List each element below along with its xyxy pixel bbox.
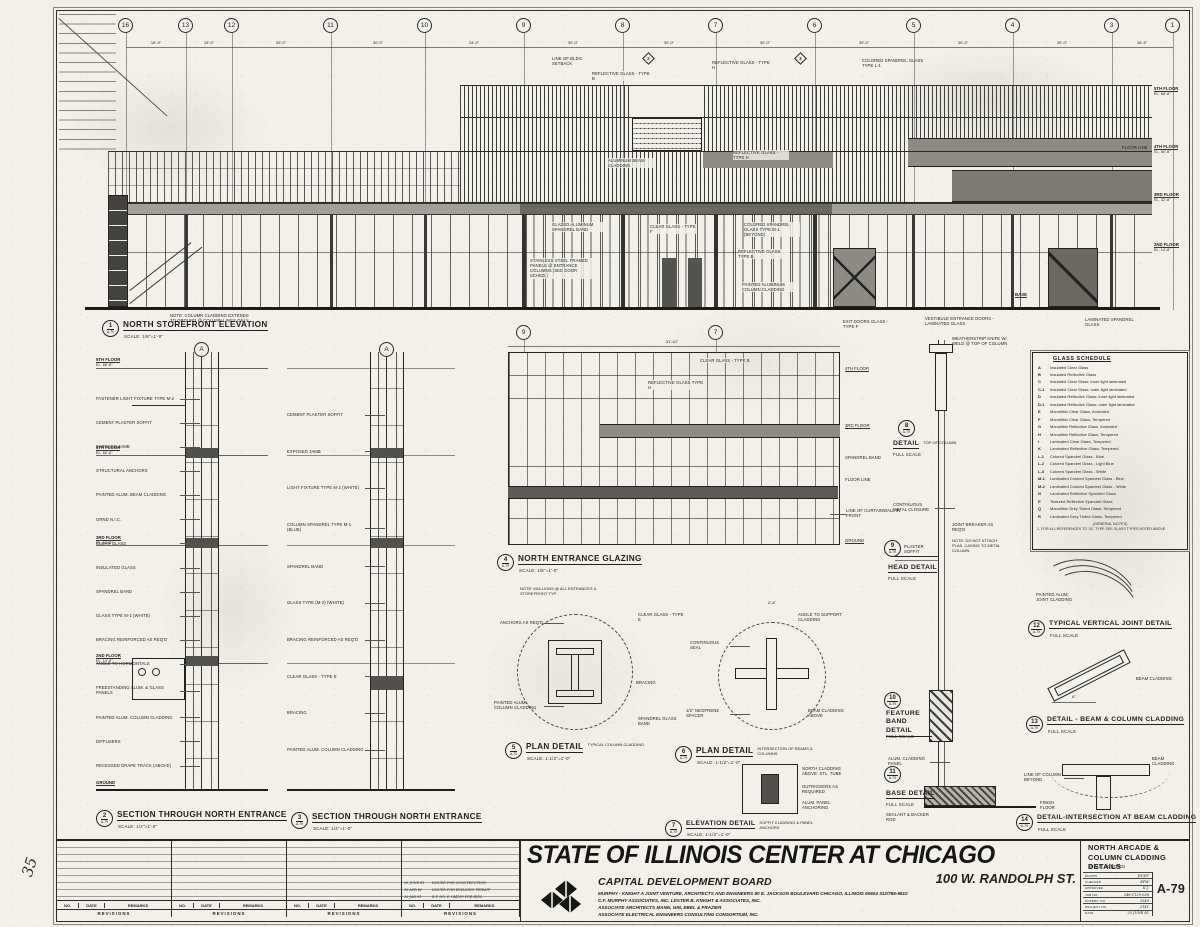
callout: REFLECTIVE GLASS TYPE B: [738, 249, 790, 259]
callout: ANCHORS AS REQ'D: [500, 620, 544, 625]
titleblock-field: CHECKED EPW: [1083, 878, 1152, 884]
column: [912, 215, 915, 307]
column: [330, 215, 333, 307]
sheet-scale-note: SCALE: AS NOTED: [1088, 864, 1125, 869]
feature-band-block: [929, 690, 953, 742]
revision-entry: 25 JUNE 81 ISSUED FOR CONSTRUCTION: [402, 880, 519, 887]
callout: PAINTED ALUM. BEAM CLADDING: [96, 492, 180, 497]
section-letter-bubble: A: [379, 342, 394, 357]
revision-entry: 30 JAN 81 B.P. NO. E-144150 FOR BIDS: [402, 893, 519, 900]
grid-line: [1173, 33, 1174, 310]
project-address: 100 W. RANDOLPH ST.: [908, 871, 1076, 886]
revision-remarks: B.P. NO. E-144150 FOR BIDS: [432, 895, 519, 899]
callout: BEAM CLADDING: [1152, 756, 1184, 766]
revision-rows: [287, 841, 401, 900]
callout: LIGHT FIXTURE TYPE M-2 (WHITE): [287, 485, 365, 490]
center-door: [662, 258, 676, 307]
glass-type-key: D: [1033, 393, 1050, 400]
glass-type-key: A: [1033, 364, 1050, 371]
callout: BRACING REINFORCED AS REQ'D: [287, 637, 365, 642]
callout: REFLECTIVE GLASS - TYPE B: [592, 71, 650, 81]
soffit-line: [895, 560, 938, 561]
field-label: CHECKED: [1083, 880, 1109, 884]
entrance-column: [522, 215, 526, 307]
ground-label: GROUND: [845, 538, 864, 544]
glass-type-desc: Monolithic Reflective Glass, Annealed: [1050, 423, 1187, 430]
callout: SEALANT & BACKER ROD: [886, 812, 934, 822]
glass-type-desc: Insulated Reflective Glass; outer light …: [1050, 401, 1187, 408]
glass-type-desc: Laminated Colored Spandrel Glass - Blue: [1050, 475, 1187, 482]
field-value: 25 JUNE 81: [1109, 911, 1152, 915]
revision-header: NO. DATE REMARKS: [172, 900, 286, 909]
detail-bubble: 11A-79: [884, 766, 901, 783]
drawing-subtitle: INTERSECTION OF BEAMS & COLUMNS: [757, 747, 827, 757]
glass-schedule-row: K Laminated Reflective Glass, Tempered: [1033, 445, 1187, 452]
curtainwall-gap: [632, 86, 702, 117]
spandrel-label: SPANDREL BAND: [845, 455, 881, 460]
callout: EXPOSED JAMB: [96, 444, 180, 449]
glass-schedule-row: I Laminated Clear Glass, Tempered: [1033, 438, 1187, 445]
glass-type-desc: Colored Spandrel Glass - White: [1050, 468, 1187, 475]
revisions-label: REVISIONS: [172, 909, 286, 917]
revision-entries: 25 JUNE 81 ISSUED FOR CONSTRUCTION 16 AP…: [402, 880, 519, 900]
glass-type-desc: Colored Spandrel Glass - Blue: [1050, 453, 1187, 460]
titleblock-field: SUPERV. NO. 2549: [1083, 897, 1152, 903]
glass-type-key: I: [1033, 438, 1050, 445]
glass-type-key: R: [1033, 513, 1050, 520]
revision-rows: [172, 841, 286, 900]
grid-dim: 18'-9": [1137, 40, 1147, 45]
callout: CLEAR GLASS - TYPE B: [700, 358, 750, 363]
drawing-title: NORTH STOREFRONT ELEVATION: [123, 320, 268, 331]
callout: GLASS TYPE M-2 (WHITE): [96, 613, 180, 618]
grid-bubble: 10: [417, 18, 432, 33]
glass-type-desc: Laminated Reflective Spandrel Glass: [1050, 490, 1187, 497]
callout: PAINTED ALUM. COLUMN CLADDING: [494, 700, 544, 710]
drawing-title: TYPICAL VERTICAL JOINT DETAIL: [1049, 620, 1172, 629]
titleblock-field: JOB NO. 248-1129-038: [1083, 891, 1152, 897]
glazing4-note: NOTE: MULLIONS @ ALL ENTRANCES & STOREFR…: [520, 586, 600, 596]
detail6-dim: 2'-4": [768, 600, 776, 605]
detail-bubble: 13A-79: [1026, 716, 1043, 733]
floor-label: 3RD FLOOR: [845, 423, 870, 429]
base-label: BASE: [1015, 292, 1027, 298]
floor-label: 5TH FLOOREL. 68'-8": [1154, 86, 1178, 97]
cdb-logo: [538, 874, 588, 918]
glass-schedule-rows: A Insulated Clear Glass B Insulated Refl…: [1033, 364, 1187, 521]
callout: NORTH CLADDING ABOVE: STL. TUBE: [802, 766, 854, 776]
sheet-number: A-79: [1153, 882, 1189, 896]
callout: EXPOSED JAMB: [287, 449, 365, 454]
transom-line: [108, 252, 1152, 253]
drawing-title: DETAIL - BEAM & COLUMN CLADDING: [1047, 716, 1184, 725]
drawing-title: SECTION THROUGH NORTH ENTRANCE: [117, 810, 287, 821]
callout: BRACING: [636, 680, 672, 685]
entrance-column: [813, 215, 817, 307]
drawing-sheet: 35 16 13 12 11 10 9 8 7 6 5 4 3 1 18'-9"…: [0, 0, 1200, 927]
field-label: DRAWN: [1083, 874, 1109, 878]
detail-bubble: 3A-79: [291, 812, 308, 829]
detail-bubble: 10A-79: [884, 692, 901, 709]
credit-line: ASSOCIATE ARCHITECTS MANN, GIN, EBEL & F…: [598, 905, 721, 910]
revision-rows: [57, 841, 171, 900]
section3-spandrel-node: [371, 538, 403, 548]
callout: RECESSED DRAPE TRACK (ABOVE): [96, 763, 180, 768]
rev-col-remarks: REMARKS: [335, 903, 401, 908]
revision-date: 16 APR 81: [402, 888, 432, 892]
detail13-dim-line: [1052, 702, 1096, 703]
grid-bubble: 11: [323, 18, 338, 33]
callout: CLEAR GLASS - TYPE F: [650, 224, 696, 234]
grid-dim: 30'-0": [859, 40, 869, 45]
drawing-title: SECTION THROUGH NORTH ENTRANCE: [312, 812, 482, 823]
callout: SPANDREL GLASS BAND: [638, 716, 684, 726]
callout: PAINTED ALUM. COLUMN CLADDING: [96, 715, 180, 720]
glass-schedule-row: D-1 Insulated Reflective Glass; outer li…: [1033, 401, 1187, 408]
rev-col-date: DATE: [424, 903, 450, 908]
glass-type-key: G: [1033, 423, 1050, 430]
grid-bubble: 12: [224, 18, 239, 33]
revisions-label: REVISIONS: [57, 909, 171, 917]
callout: GLAZED ALUMINUM SPANDREL BAND: [552, 222, 604, 232]
section3-glazing-line: [386, 352, 387, 789]
grid-dim: 30'-0": [373, 40, 383, 45]
finish-floor-line: [924, 806, 1036, 808]
detail-bubble: 1A-79: [102, 320, 119, 337]
floor-label: 5TH FLOOREL. 68'-8": [96, 357, 120, 368]
glass-type-desc: Insulated Reflective Glass; inner light …: [1050, 393, 1187, 400]
base-block: [924, 786, 996, 806]
titleblock-fields: DRAWN JW/RT CHECKED EPW APPROVED K.J. JO…: [1083, 872, 1153, 916]
exit-door-panel: [833, 248, 876, 307]
drawing11-title-row: BASE DETAIL: [886, 790, 935, 799]
floor-label: 4TH FLOOR: [845, 366, 869, 372]
grid-dim: 30'-0": [760, 40, 770, 45]
section3-callouts: CEMENT PLASTER SOFFITEXPOSED JAMBLIGHT F…: [287, 412, 365, 752]
drawing-scale: SCALE: 1-1/2"=1'-0": [527, 756, 571, 761]
glass-schedule-row: L-2 Colored Spandrel Glass - Light Blue: [1033, 460, 1187, 467]
rev-col-no: NO.: [172, 903, 194, 908]
detail-bubble: 6A-79: [675, 746, 692, 763]
rev-col-date: DATE: [79, 903, 105, 908]
detail9-note: NOTE: DO NOT ATTACH PLAS. CASING TO META…: [952, 538, 1008, 553]
grid-dim: 30'-0": [1057, 40, 1067, 45]
column: [1110, 215, 1113, 307]
glass-type-desc: Monolithic Grey Tinted Glass, Tempered: [1050, 505, 1187, 512]
glass-type-key: L-2: [1033, 460, 1050, 467]
callout: BRACING: [287, 710, 365, 715]
field-label: JOB NO.: [1083, 893, 1109, 897]
callout: REFLECTIVE GLASS - TYPE H: [733, 150, 789, 160]
rev-col-date: DATE: [194, 903, 220, 908]
revision-remarks: ISSUED FOR CONSTRUCTION: [432, 881, 519, 885]
drawing-subtitle: SOFFIT CLADDING & PANEL ANCHORS: [759, 821, 829, 831]
glass-type-key: C-1: [1033, 386, 1050, 393]
callout: DIFFUSERS: [96, 739, 180, 744]
board-name: CAPITAL DEVELOPMENT BOARD: [598, 876, 772, 888]
callout: STAINLESS STEEL FRAMED PANELS @ ENTRANCE…: [530, 258, 592, 279]
louver-box: [632, 118, 702, 151]
floor-line-label: FLOOR LINE: [1122, 145, 1148, 150]
field-label: SUPERV. NO.: [1083, 899, 1109, 903]
glass-type-desc: Insulated Clear Glass; outer light lamin…: [1050, 386, 1187, 393]
grid-bubble: 9: [516, 18, 531, 33]
glass-schedule-row: L-1 Colored Spandrel Glass - Blue: [1033, 453, 1187, 460]
drawing5-title-row: 5A-79 PLAN DETAIL TYPICAL COLUMN CLADDIN…: [505, 742, 644, 759]
glass-schedule: GLASS SCHEDULE A Insulated Clear Glass B…: [1032, 352, 1188, 550]
glazing4-dim: 31'-10": [666, 339, 678, 344]
field-value: K.J.: [1109, 886, 1152, 890]
glass-type-desc: Monolithic Reflective Glass, Tempered: [1050, 431, 1187, 438]
glass-schedule-row: Q Monolithic Grey Tinted Glass, Tempered: [1033, 505, 1187, 512]
glass-type-desc: Monolithic Clear Glass, Tempered: [1050, 416, 1187, 423]
detail7-anchor: [761, 774, 779, 804]
callout: COLORED SPANDREL GLASS TYPE L-1: [862, 58, 924, 68]
callout: LINE OF BLDG. SETBACK: [552, 56, 604, 66]
glass-type-key: K: [1033, 445, 1050, 452]
revisions-label: REVISIONS: [287, 909, 401, 917]
drawing-scale: SCALE: 1/8"=1'-0": [519, 568, 558, 573]
callout: CLEAR GLASS - TYPE E: [638, 612, 684, 622]
drawing-title: PLAN DETAIL: [526, 742, 583, 753]
drawing-subtitle: TOP OF COLUMN: [923, 441, 956, 446]
drawing-scale: SCALE: 1-1/2"=1'-0": [697, 760, 741, 765]
revision-entry: 16 APR 81 ISSUED FOR BUILDING PERMIT: [402, 886, 519, 893]
detail-bubble: 12A-79: [1028, 620, 1045, 637]
field-value: 2549: [1109, 899, 1152, 903]
callout: GRND N.I.C.: [96, 517, 180, 522]
drawing-scale: SCALE: 1/8"=1'-0": [124, 334, 163, 339]
glazing4-line: [508, 375, 840, 376]
detail-bubble: 5A-79: [505, 742, 522, 759]
glass-type-desc: Insulated Clear Glass: [1050, 364, 1187, 371]
drawing-scale: SCALE: 1/4"=1'-0": [313, 826, 352, 831]
callout: PAINTED ALUM. COLUMN CLADDING: [287, 747, 365, 752]
rev-col-remarks: REMARKS: [105, 903, 171, 908]
callout: WEATHERSTRIP KNIFE W/ WELD @ TOP OF COLU…: [952, 336, 1010, 346]
floor-label: 4TH FLOOREL. 50'-8": [1154, 144, 1178, 155]
drawing-scale: FULL SCALE: [1038, 827, 1066, 832]
grid-bubble: 16: [118, 18, 133, 33]
callout: CLEAR GLASS: [96, 541, 180, 546]
spandrel-band-dark: [520, 204, 832, 214]
spandrel-slab-right-2: [952, 170, 1152, 202]
callout: EXIT DOORS GLASS - TYPE F: [843, 319, 895, 329]
drawing-title: DETAIL: [893, 440, 919, 449]
callout: ALUM. CLADDING PANEL: [888, 756, 930, 766]
glazing4-band: [600, 424, 840, 438]
callout: COLORED SPANDREL GLASS TYPE M-1 (BEYOND): [744, 222, 800, 237]
drawing-title: PLAN DETAIL: [696, 746, 753, 757]
grid-bubble: 6: [807, 18, 822, 33]
soffit-line: [895, 556, 938, 557]
drawing-scale: FULL SCALE: [1048, 729, 1076, 734]
glazing4-line: [508, 466, 840, 467]
detail8-cap: [929, 344, 953, 353]
column: [1011, 215, 1014, 307]
callout: LAMINATED SPANDREL GLASS: [1085, 317, 1145, 327]
field-label: DATE: [1083, 911, 1109, 915]
grid-bubble: 4: [1005, 18, 1020, 33]
revisions-panel: 25 JUNE 81 ISSUED FOR CONSTRUCTION 16 AP…: [402, 841, 520, 917]
callout: PAINTED ALUMINUM COLUMN CLADDING: [742, 282, 798, 292]
glass-schedule-row: P Textured Reflective Spandrel Glass: [1033, 498, 1187, 505]
callout: ANGLE TO HORIZONTALS: [96, 661, 180, 666]
grid-bubble: 5: [906, 18, 921, 33]
project-title: STATE OF ILLINOIS CENTER AT CHICAGO: [527, 841, 1055, 870]
titleblock-field: APPROVED K.J.: [1083, 885, 1152, 891]
ground-line: [287, 789, 455, 791]
callout: BEAM CLADDING: [1136, 676, 1172, 681]
drawing-scale: FULL SCALE: [888, 576, 916, 581]
rev-col-no: NO.: [402, 903, 424, 908]
callout: PLASTER SOFFIT: [904, 544, 938, 554]
glass-schedule-row: R Laminated Grey Tinted Glass, Tempered: [1033, 513, 1187, 520]
callout: ANGLE TO SUPPORT CLADDING: [798, 612, 848, 622]
titleblock-field: PROJECT NO. 2141: [1083, 903, 1152, 909]
detail5-web: [571, 654, 579, 691]
field-label: PROJECT NO.: [1083, 905, 1109, 909]
callout: SPANDREL BAND: [287, 564, 365, 569]
curtainwall-band-upper: [460, 86, 1152, 117]
glass-schedule-row: C Insulated Clear Glass; inner light lam…: [1033, 378, 1187, 385]
glazing4-line: [508, 518, 840, 519]
glass-type-desc: Textured Reflective Spandrel Glass: [1050, 498, 1187, 505]
grid-bubble: 7: [708, 325, 723, 340]
callout: COLUMN SPANDREL TYPE M-1 (BLUE): [287, 522, 365, 532]
callout: OUTRIGGERS AS REQUIRED: [802, 784, 854, 794]
ground-line: [96, 789, 268, 791]
rev-col-remarks: REMARKS: [220, 903, 286, 908]
detail14-dashed-arc: [1050, 742, 1170, 798]
callout: FREESTANDING ALUM. & GLASS PANELS: [96, 685, 180, 695]
glass-type-key: D-1: [1033, 401, 1050, 408]
callout: VESTIBULE ENTRANCE DOORS - LAMINATED GLA…: [925, 316, 995, 326]
field-label: APPROVED: [1083, 886, 1109, 890]
floor-line: [96, 368, 268, 369]
glass-type-desc: Insulated Reflective Glass: [1050, 371, 1187, 378]
glass-type-key: P: [1033, 498, 1050, 505]
detail8-stem: [935, 353, 947, 411]
glass-schedule-row: M-2 Laminated Colored Spandrel Glass - W…: [1033, 483, 1187, 490]
glass-type-key: C: [1033, 378, 1050, 385]
glass-schedule-note: 1. FOR ALL REFERENCES TO 'GL' TYPE SEE G…: [1033, 526, 1187, 531]
floor-label: 3RD FLOOREL. 32'-8": [1154, 192, 1179, 203]
drawing-title: NORTH ENTRANCE GLAZING: [518, 554, 642, 565]
drawing8-title-row: DETAIL TOP OF COLUMN: [893, 440, 956, 449]
wing-line-2: [108, 185, 460, 186]
glass-schedule-row: F Monolithic Clear Glass, Tempered: [1033, 416, 1187, 423]
entrance-column: [621, 215, 625, 307]
grid-bubble: 1: [1165, 18, 1180, 33]
callout: CONTINUOUS METAL CLOSURE: [893, 502, 935, 512]
credit-line: ASSOCIATE ELECTRICAL ENGINEERS CONSULTIN…: [598, 912, 759, 917]
spandrel-slab-right-1: [908, 138, 1152, 167]
drawing-title: HEAD DETAIL: [888, 564, 937, 573]
glass-schedule-title: GLASS SCHEDULE: [1033, 353, 1187, 364]
service-door-panel: [1048, 248, 1098, 307]
detail13-dim: 6": [1072, 694, 1076, 699]
glass-type-key: M-1: [1033, 475, 1050, 482]
drawing-scale: FULL SCALE: [886, 734, 914, 739]
glass-type-key: H: [1033, 431, 1050, 438]
glass-schedule-row: G Monolithic Reflective Glass, Annealed: [1033, 423, 1187, 430]
detail6-beam-v: [766, 638, 777, 710]
floor-line-label: FLOOR LINE: [845, 477, 871, 482]
detail-bubble: 2A-79: [96, 810, 113, 827]
grid-bubble: 3: [1104, 18, 1119, 33]
rev-col-remarks: REMARKS: [450, 903, 519, 908]
glass-schedule-row: N Laminated Reflective Spandrel Glass: [1033, 490, 1187, 497]
grid-dim: 30'-0": [276, 40, 286, 45]
detail-bubble: 7A-79: [665, 820, 682, 837]
grid-bubble: 7: [708, 18, 723, 33]
glass-type-desc: Laminated Reflective Glass, Tempered: [1050, 445, 1187, 452]
sheet-title-line1: NORTH ARCADE &: [1088, 843, 1200, 853]
glass-schedule-row: C-1 Insulated Clear Glass; outer light l…: [1033, 386, 1187, 393]
callout: CLEAR GLASS - TYPE E: [287, 674, 365, 679]
glass-type-key: Q: [1033, 505, 1050, 512]
ground-line: [85, 307, 1160, 310]
rev-col-date: DATE: [309, 903, 335, 908]
glass-type-desc: Colored Spandrel Glass - Light Blue: [1050, 460, 1187, 467]
titleblock-divider: [520, 839, 521, 922]
callout: REFLECTIVE GLASS TYPE H: [648, 380, 704, 390]
glass-type-key: E: [1033, 408, 1050, 415]
revision-rows: 25 JUNE 81 ISSUED FOR CONSTRUCTION 16 AP…: [402, 841, 519, 900]
drawing-subtitle: TYPICAL COLUMN CLADDING: [587, 743, 644, 748]
drawing-scale: SCALE: 1/4"=1'-0": [118, 824, 157, 829]
binding-strip: [59, 14, 116, 150]
section2-spandrel-node: [186, 448, 218, 458]
margin-note: 35: [18, 855, 41, 879]
glass-type-key: N: [1033, 490, 1050, 497]
drawing-title: DETAIL-INTERSECTION AT BEAM CLADDING: [1037, 814, 1196, 823]
titleblock-field: DRAWN JW/RT: [1083, 872, 1152, 878]
credit-line: C.F. MURPHY ASSOCIATES, INC. LESTER B. K…: [598, 898, 761, 903]
column: [185, 215, 188, 307]
glass-schedule-row: H Monolithic Reflective Glass, Tempered: [1033, 431, 1187, 438]
grid-dim: 30'-0": [958, 40, 968, 45]
callout: FINISH FLOOR: [1040, 800, 1070, 810]
field-value: EPW: [1109, 880, 1152, 884]
glass-type-desc: Laminated Colored Spandrel Glass - White: [1050, 483, 1187, 490]
callout: REFLECTIVE GLASS - TYPE H: [712, 60, 772, 70]
glass-type-desc: Laminated Grey Tinted Glass, Tempered: [1050, 513, 1187, 520]
detail-bubble: 9A-79: [884, 540, 901, 557]
drawing-title: ELEVATION DETAIL: [686, 820, 755, 829]
callout: 1/2" NEOPRENE SPACER: [686, 708, 730, 718]
callout: FASTENER LIGHT FIXTURE TYPE M-2: [96, 396, 180, 401]
glass-type-key: F: [1033, 416, 1050, 423]
section-letter-bubble: A: [194, 342, 209, 357]
field-value: 248-1129-038: [1109, 893, 1152, 897]
revisions-panel: NO. DATE REMARKS REVISIONS: [57, 841, 172, 917]
detail-bubble: 4A-79: [497, 554, 514, 571]
glass-schedule-row: M-1 Laminated Colored Spandrel Glass - B…: [1033, 475, 1187, 482]
drawing-scale: FULL SCALE: [893, 452, 921, 457]
glass-type-key: B: [1033, 371, 1050, 378]
glass-schedule-row: D Insulated Reflective Glass; inner ligh…: [1033, 393, 1187, 400]
glazing4-spandrel: [508, 486, 838, 499]
detail-bubble: 14A-79: [1016, 814, 1033, 831]
revision-header: NO. DATE REMARKS: [57, 900, 171, 909]
section3-spandrel-node: [371, 676, 403, 690]
drawing-title: BASE DETAIL: [886, 790, 935, 799]
revision-date: 25 JUNE 81: [402, 881, 432, 885]
credit-line: MURPHY - KNIGHT A JOINT VENTURE, ARCHITE…: [598, 891, 908, 896]
revisions-panel: NO. DATE REMARKS REVISIONS: [172, 841, 287, 917]
